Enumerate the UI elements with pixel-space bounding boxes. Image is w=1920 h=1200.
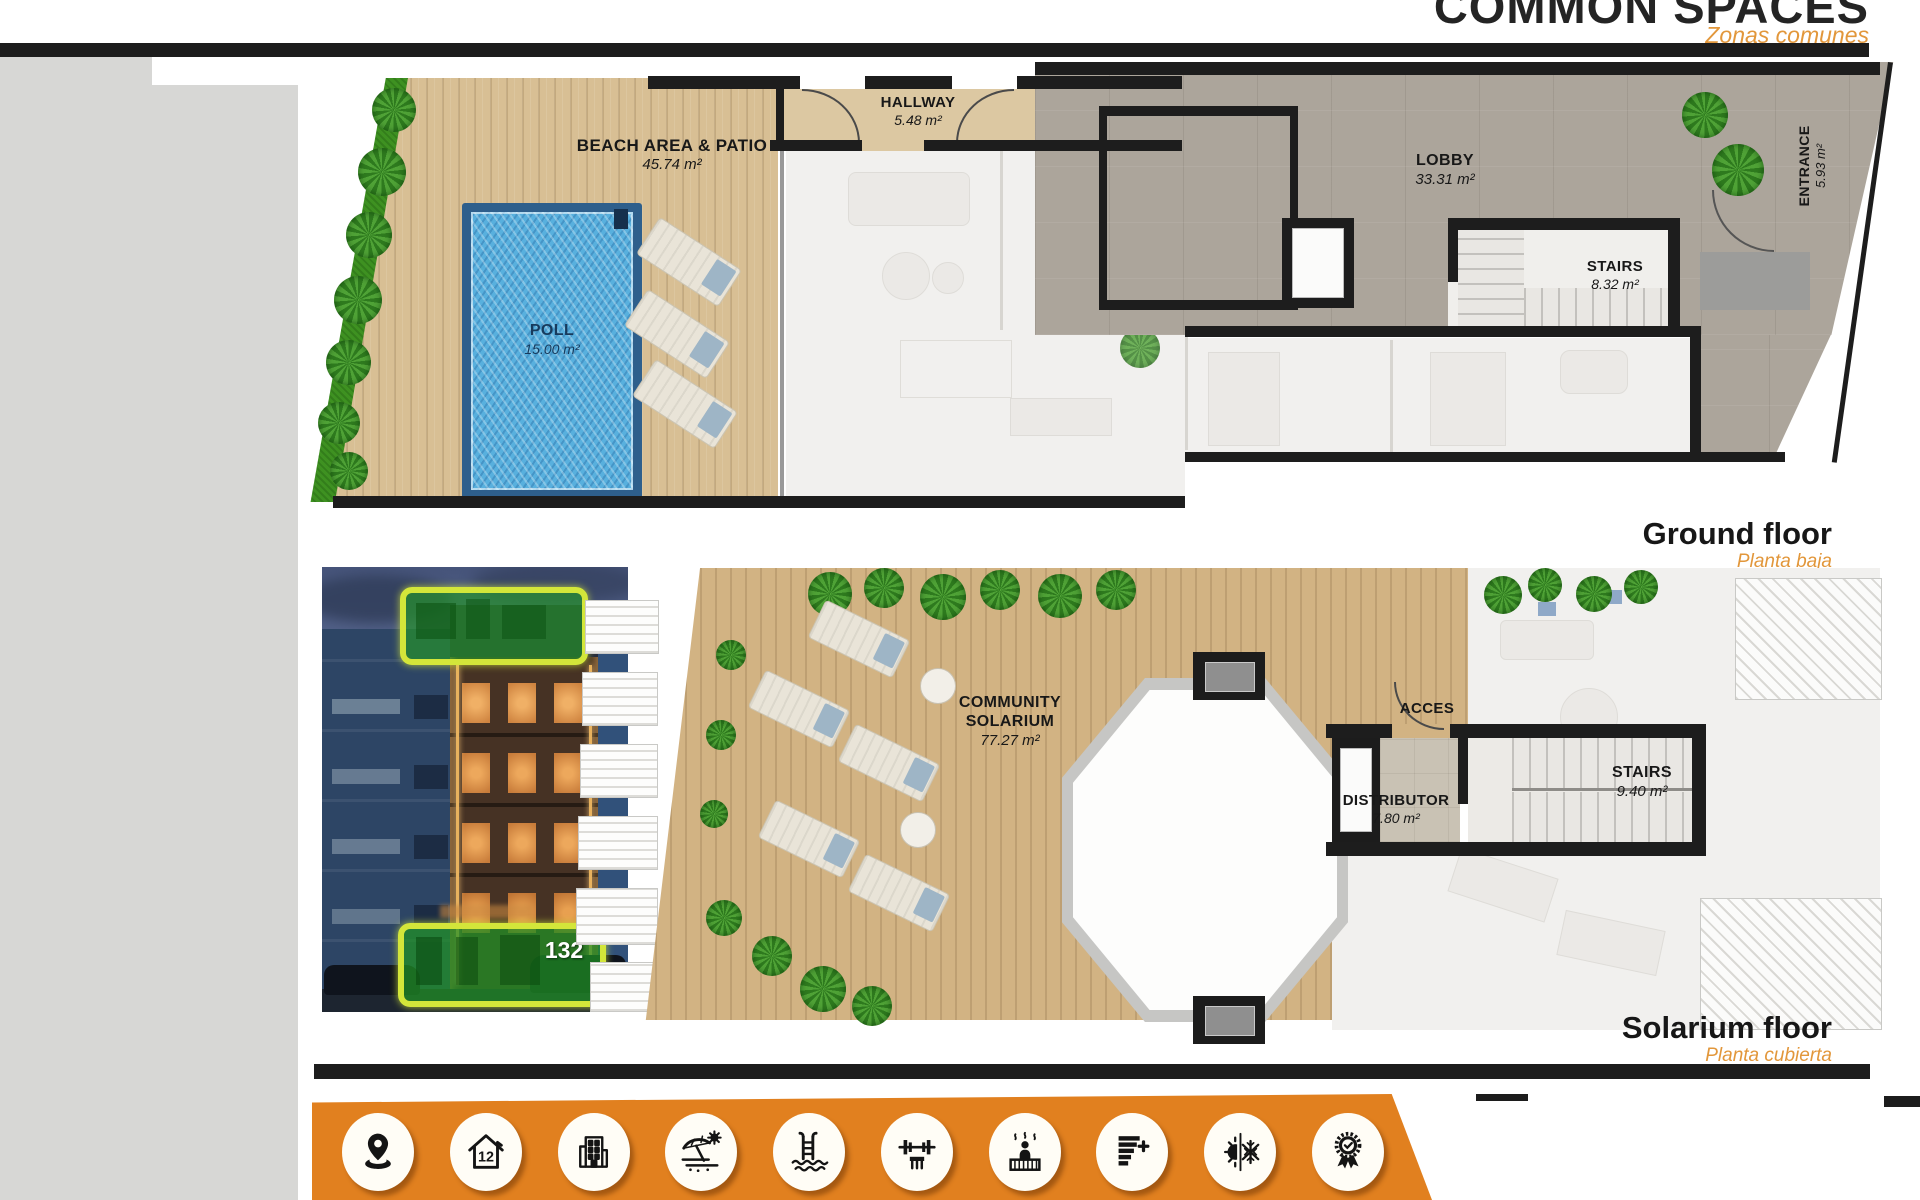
stair-treads (1458, 230, 1524, 330)
beach-area-label: BEACH AREA & PATIO 45.74 m² (547, 136, 797, 174)
plan-wall (1035, 62, 1880, 75)
solarium-floor-caption: Solarium floor Planta cubierta (1450, 1012, 1832, 1066)
gym-wall (1099, 106, 1298, 116)
terrace-plant (1624, 570, 1658, 604)
plan-wall (1185, 326, 1695, 337)
side-table (900, 812, 936, 848)
roof-panel (578, 816, 658, 870)
window-line (779, 151, 785, 501)
plan-wall (770, 140, 1182, 151)
deck-plant (700, 800, 728, 828)
skylight-box (1193, 652, 1265, 700)
palm-tree-icon (358, 148, 406, 196)
building-sign (440, 905, 532, 918)
lobby-label: LOBBY 33.31 m² (1385, 152, 1505, 189)
house-12-years-icon: 12 (450, 1113, 522, 1191)
location-pin-icon (342, 1113, 414, 1191)
gym-wall (1290, 106, 1298, 218)
quality-medal-icon (1312, 1113, 1384, 1191)
palm-tree-icon (330, 452, 368, 490)
distributor-label: DISTRIBUTOR 7.80 m² (1326, 792, 1466, 826)
unit-wall (1326, 724, 1706, 738)
deck-plant (920, 574, 966, 620)
pool-ladder (614, 209, 628, 229)
stairs-ground-label: STAIRS 8.32 m² (1560, 258, 1670, 292)
deck-plant (1038, 574, 1082, 618)
furniture-bath (1560, 350, 1628, 394)
beach-umbrella-icon (665, 1113, 737, 1191)
palm-tree-icon (346, 212, 392, 258)
furniture-kitchen (1010, 398, 1112, 436)
top-divider-bar (0, 43, 1869, 57)
door-opening (952, 76, 1017, 89)
plan-wall (1690, 326, 1701, 462)
furniture-bed (1430, 352, 1506, 446)
furniture-bed (1208, 352, 1280, 446)
roof-panel (582, 672, 658, 726)
elevator-ground (1282, 218, 1354, 308)
entrance-corridor-floor (1695, 335, 1835, 462)
interior-wall-faint (1390, 340, 1393, 458)
roof-panel-diagonal (1735, 578, 1882, 700)
blue-cushion (1538, 602, 1556, 616)
lobby-palm (1712, 144, 1764, 196)
left-gray-notch (152, 57, 298, 85)
unit-wall (1326, 842, 1706, 856)
bottom-divider-bar (314, 1064, 1870, 1079)
terrace-plant (1484, 576, 1522, 614)
sauna-icon (989, 1113, 1061, 1191)
octagon-skylight (1062, 678, 1348, 1022)
stairs-solarium-label: STAIRS 9.40 m² (1582, 764, 1702, 801)
plan-wall (648, 76, 1182, 89)
deck-plant (1096, 570, 1136, 610)
acces-label: ACCES (1372, 700, 1482, 718)
left-gray-panel (0, 57, 298, 1200)
gym-fitness-icon (881, 1113, 953, 1191)
roof-panel (585, 600, 659, 654)
palm-tree-icon (372, 88, 416, 132)
deck-plant (706, 720, 736, 750)
community-solarium-label: COMMUNITY SOLARIUM 77.27 m² (938, 694, 1082, 749)
deck-plant (864, 568, 904, 608)
entrance-mat (1700, 252, 1810, 310)
furniture-table (882, 252, 930, 300)
plan-wall (1185, 452, 1785, 462)
stairs-wall (1448, 218, 1458, 282)
deck-plant (716, 640, 746, 670)
corner-mark (1884, 1096, 1920, 1107)
terrace-sofa (1500, 620, 1594, 660)
svg-text:12: 12 (478, 1150, 494, 1166)
entrance-label: ENTRANCE 5.93 m² (1796, 106, 1828, 226)
palm-tree-icon (318, 402, 360, 444)
climate-sun-snowflake-icon (1204, 1113, 1276, 1191)
furniture-table (932, 262, 964, 294)
palm-tree-icon (326, 340, 371, 385)
brochure-page: COMMON SPACES Zonas comunes POLL 15.00 m… (0, 0, 1920, 1200)
lobby-palm (1682, 92, 1728, 138)
roof-terrace-faded (1332, 856, 1468, 1030)
pool-ladder-icon (773, 1113, 845, 1191)
solarium-highlight-box (400, 587, 588, 665)
stairs-wall (1448, 218, 1680, 230)
apartment-building-icon (558, 1113, 630, 1191)
elevator-solarium (1332, 738, 1380, 842)
gym-wall (1099, 300, 1298, 310)
ground-floor-caption: Ground floor Planta baja (1450, 518, 1832, 572)
pool-label: POLL 15.00 m² (470, 322, 634, 357)
deck-plant (980, 570, 1020, 610)
deck-plant (852, 986, 892, 1026)
plan-wall (333, 496, 1185, 508)
roof-panel (576, 888, 658, 945)
roof-panel (580, 744, 658, 798)
energy-rating-plus-icon (1096, 1113, 1168, 1191)
door-opening (862, 140, 924, 151)
terrace-plant (1528, 568, 1562, 602)
gym-wall (1099, 106, 1107, 308)
terrace-plant (1576, 576, 1612, 612)
palm-tree-icon (334, 276, 382, 324)
door-opening (800, 76, 865, 89)
ground-highlight-box: 132 (398, 923, 606, 1007)
corner-mark (1476, 1094, 1528, 1101)
furniture-sofa (848, 172, 970, 226)
furniture-rug (900, 340, 1012, 398)
skylight-box (1193, 996, 1265, 1044)
interior-wall-faint (1000, 150, 1003, 330)
distributor-floor (1380, 738, 1460, 842)
deck-plant (752, 936, 792, 976)
deck-plant (800, 966, 846, 1012)
deck-plant (706, 900, 742, 936)
plan-wall (776, 89, 784, 151)
